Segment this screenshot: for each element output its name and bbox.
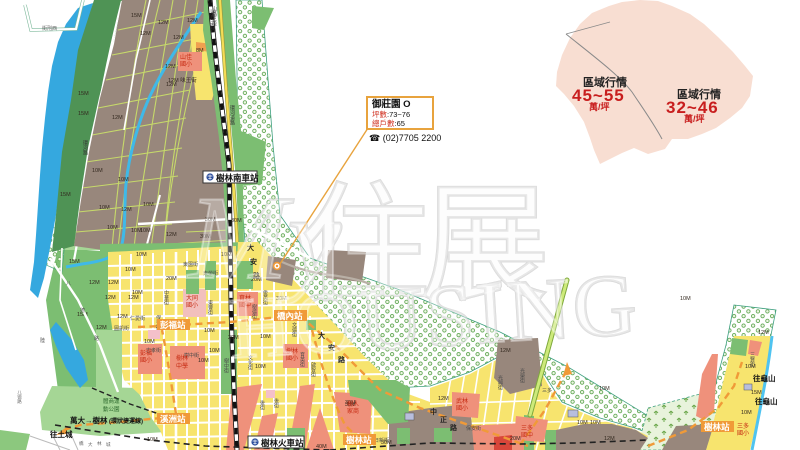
svg-text:城: 城 [106, 441, 111, 448]
svg-text:12M: 12M [438, 396, 449, 402]
svg-text:後街: 後街 [273, 397, 279, 409]
svg-text:10M: 10M [590, 420, 601, 426]
svg-text:中學: 中學 [176, 362, 188, 370]
svg-text:街刑西: 街刑西 [42, 25, 57, 32]
svg-text:10M: 10M [107, 225, 118, 231]
svg-text:日新街: 日新街 [374, 437, 389, 444]
svg-text:12M: 12M [158, 20, 169, 26]
svg-text:10M: 10M [680, 296, 691, 302]
svg-text:15M: 15M [131, 13, 142, 19]
svg-text:橋: 橋 [79, 440, 84, 447]
svg-text:萬/坪: 萬/坪 [684, 113, 705, 124]
svg-text:環河路: 環河路 [82, 140, 88, 156]
svg-text:12M: 12M [173, 35, 184, 41]
svg-text:往土城: 往土城 [50, 429, 73, 439]
svg-text:10M: 10M [204, 328, 215, 334]
svg-text:保安街: 保安街 [466, 425, 481, 432]
svg-text:樹林: 樹林 [176, 354, 188, 362]
svg-text:林: 林 [97, 440, 102, 447]
svg-text:15M: 15M [78, 91, 89, 97]
svg-text:大: 大 [88, 441, 93, 448]
svg-text:10M: 10M [599, 386, 610, 392]
svg-text:12M: 12M [604, 436, 615, 442]
svg-text:御莊園 O: 御莊園 O [371, 98, 411, 110]
svg-text:圓凱街: 圓凱街 [114, 325, 129, 332]
svg-text:萬/坪: 萬/坪 [589, 101, 610, 112]
svg-text:12M: 12M [108, 280, 119, 286]
svg-text:12M: 12M [165, 64, 176, 70]
svg-text:陸: 陸 [40, 337, 45, 344]
svg-text:體商運: 體商運 [103, 397, 120, 405]
svg-text:後街: 後街 [259, 399, 265, 411]
svg-text:15M: 15M [78, 111, 89, 117]
svg-text:12M: 12M [105, 295, 116, 301]
svg-text:12M: 12M [121, 207, 132, 213]
svg-text:家商: 家商 [347, 407, 359, 415]
svg-text:12M: 12M [117, 314, 128, 320]
svg-text:10M: 10M [577, 420, 588, 426]
svg-text:20M: 20M [166, 276, 177, 282]
svg-text:往龜山: 往龜山 [753, 373, 776, 383]
svg-text:樹林站: 樹林站 [704, 422, 730, 432]
svg-text:動公園: 動公園 [103, 405, 120, 413]
svg-text:10M: 10M [131, 228, 142, 234]
svg-text:12M: 12M [187, 18, 198, 24]
svg-text:10M: 10M [118, 177, 129, 183]
svg-text:國中: 國中 [521, 431, 533, 439]
svg-text:溪洲站: 溪洲站 [160, 414, 186, 424]
svg-text:20M: 20M [510, 436, 521, 442]
svg-text:40M: 40M [316, 444, 327, 450]
svg-text:山佳: 山佳 [180, 53, 192, 61]
svg-text:路: 路 [94, 335, 99, 342]
svg-text:12M: 12M [166, 232, 177, 238]
svg-text:國小: 國小 [737, 429, 749, 437]
svg-text:12M: 12M [96, 325, 107, 331]
svg-text:正: 正 [440, 416, 447, 424]
svg-text:德: 德 [80, 307, 85, 314]
svg-text:10M: 10M [147, 437, 158, 443]
svg-text:10M: 10M [92, 168, 103, 174]
svg-text:三多: 三多 [521, 424, 533, 432]
svg-text:12M: 12M [166, 82, 177, 88]
svg-text:樹林火車站: 樹林火車站 [261, 438, 304, 448]
svg-text:10M: 10M [125, 267, 136, 273]
svg-text:光興街: 光興街 [497, 374, 503, 391]
svg-text:往龜山: 往龜山 [755, 396, 778, 406]
svg-text:總戶數:65: 總戶數:65 [372, 118, 405, 128]
svg-text:三多: 三多 [737, 422, 749, 430]
svg-text:三賢街: 三賢街 [749, 352, 755, 368]
svg-text:國小: 國小 [140, 356, 152, 364]
svg-text:10M: 10M [209, 348, 220, 354]
svg-text:12M: 12M [112, 115, 123, 121]
svg-text:樹中街: 樹中街 [223, 357, 229, 374]
svg-text:10M: 10M [741, 410, 752, 416]
svg-text:樹林南車站: 樹林南車站 [216, 173, 259, 183]
svg-text:萬大→樹林: 萬大→樹林 [70, 415, 108, 425]
svg-text:八德路: 八德路 [17, 390, 23, 405]
svg-text:12M: 12M [89, 280, 100, 286]
svg-text:☎ (02)7705 2200: ☎ (02)7705 2200 [369, 133, 441, 143]
svg-text:15M: 15M [69, 259, 80, 265]
svg-text:10M: 10M [132, 290, 143, 296]
svg-text:10M: 10M [99, 205, 110, 211]
svg-text:光榮街: 光榮街 [519, 367, 525, 384]
svg-text:15M: 15M [60, 192, 71, 198]
svg-text:三多: 三多 [542, 387, 552, 394]
svg-text:國小: 國小 [456, 404, 468, 412]
svg-text:彭福站: 彭福站 [160, 320, 186, 330]
svg-text:10M: 10M [198, 358, 209, 364]
svg-text:仁愛街: 仁愛街 [130, 315, 145, 322]
svg-text:樹林站: 樹林站 [346, 435, 372, 445]
svg-text:國小: 國小 [180, 60, 192, 68]
svg-text:12M: 12M [758, 330, 769, 336]
svg-text:中: 中 [430, 407, 437, 416]
svg-text:彭福: 彭福 [140, 349, 152, 357]
svg-text:8M: 8M [196, 48, 204, 54]
svg-text:10M: 10M [144, 339, 155, 345]
svg-text:12M: 12M [140, 31, 151, 37]
svg-text:橋內站: 橋內站 [277, 311, 303, 321]
svg-text:15M: 15M [751, 390, 762, 396]
svg-text:中華街: 中華街 [163, 289, 169, 306]
svg-text:環河道路: 環河道路 [229, 105, 235, 126]
svg-text:山路三段: 山路三段 [209, 7, 216, 32]
svg-text:(環狀捷運線): (環狀捷運線) [109, 417, 143, 425]
svg-text:10M: 10M [143, 202, 154, 208]
svg-text:10M: 10M [136, 252, 147, 258]
svg-text:坪數:73~76: 坪數:73~76 [372, 109, 410, 119]
svg-text:武林: 武林 [456, 397, 468, 405]
svg-text:八: 八 [66, 281, 71, 287]
svg-text:樹人: 樹人 [347, 400, 359, 408]
svg-text:路: 路 [450, 423, 458, 432]
